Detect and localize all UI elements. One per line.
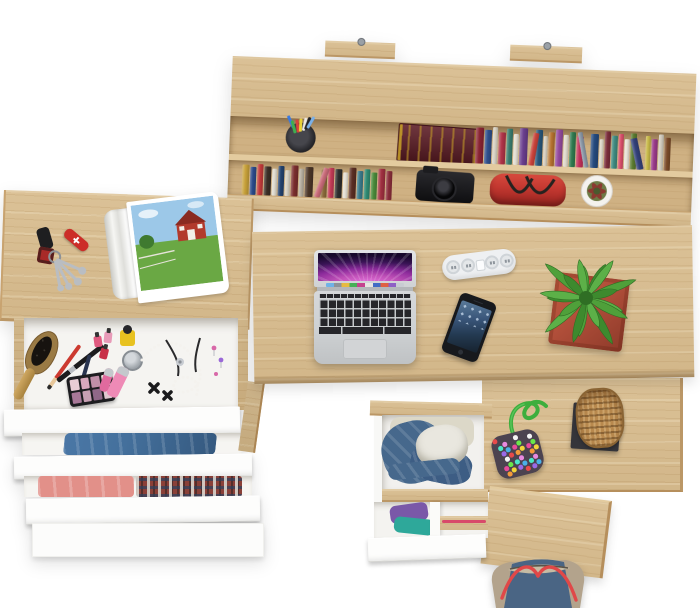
lower-drawer-interior <box>374 502 488 538</box>
nail-polish-mini <box>93 335 102 347</box>
earrings <box>212 346 224 376</box>
bead <box>518 464 523 469</box>
eyeshadow-pan <box>71 392 81 404</box>
book-spine <box>263 166 271 195</box>
bottle-cap <box>123 325 132 334</box>
bead <box>509 452 514 457</box>
bead <box>504 466 509 471</box>
bead <box>512 444 517 449</box>
book-spine <box>377 169 385 200</box>
bead <box>532 463 537 468</box>
makeup-drawer-interior <box>24 318 238 410</box>
book-spine <box>370 172 377 199</box>
wall-mount-tab <box>325 41 396 60</box>
book-spine <box>475 127 484 163</box>
drawer-wood-strip <box>440 516 488 530</box>
bead <box>505 447 510 452</box>
drawer-front-closed <box>32 523 264 557</box>
dresser-tabletop <box>0 190 254 330</box>
screw-icon <box>357 38 365 46</box>
jeans-drawer-interior <box>22 433 242 455</box>
phone-app-icons <box>456 301 491 330</box>
bead <box>529 448 534 453</box>
key-bunch <box>44 250 97 294</box>
book-spine <box>348 168 356 199</box>
eyeshadow-pan <box>69 379 79 391</box>
bead <box>501 451 506 456</box>
book-spine <box>385 171 392 200</box>
bead <box>530 439 535 444</box>
keyboard-keys <box>319 299 411 326</box>
function-key-row <box>319 294 411 298</box>
drawer-front <box>26 495 260 524</box>
bead <box>504 456 509 461</box>
open-drawer-interior <box>382 415 484 489</box>
bead <box>533 453 538 458</box>
jewelry-cluster <box>136 332 228 406</box>
book-spine <box>519 128 528 165</box>
bead <box>502 442 507 447</box>
laptop <box>314 250 416 364</box>
laptop-keyboard-deck <box>314 291 416 364</box>
bead <box>498 446 503 451</box>
succulent-plant <box>522 232 646 350</box>
book-spine <box>498 132 506 164</box>
book-spine <box>334 169 342 198</box>
book-spine <box>342 172 348 198</box>
bead <box>508 462 513 467</box>
folded-plaid-clothes <box>136 476 242 497</box>
laptop-wallpaper <box>318 253 412 281</box>
bottle-cap <box>106 328 111 333</box>
drawer-wood-rail <box>382 489 488 502</box>
book-spine <box>555 129 563 166</box>
teal-cloth <box>393 516 434 536</box>
screw-icon <box>543 42 551 50</box>
pink-trim <box>442 520 486 523</box>
bead <box>507 471 512 476</box>
pens <box>285 122 316 153</box>
bead <box>536 459 541 464</box>
handbag-straps <box>489 171 566 205</box>
power-socket <box>484 255 500 271</box>
bead <box>512 435 517 440</box>
pearl-necklace <box>142 343 192 360</box>
barn-photo <box>131 196 224 291</box>
bead <box>526 443 531 448</box>
bead <box>528 458 533 463</box>
makeup-drawer-open <box>14 318 248 410</box>
bead <box>522 460 527 465</box>
bead <box>514 459 519 464</box>
bead <box>511 467 516 472</box>
bead <box>515 450 520 455</box>
book-spine <box>590 134 599 168</box>
power-socket <box>460 258 476 274</box>
spacebar-row <box>319 327 411 334</box>
folded-jeans <box>63 433 217 455</box>
hairbrush-handle <box>12 366 37 401</box>
bottle-cap <box>95 332 100 338</box>
under-desk-drawers <box>368 386 496 562</box>
book-spine <box>284 170 290 196</box>
wall-mount-tab <box>510 45 583 64</box>
hair-clips <box>150 384 171 399</box>
book-spine <box>363 169 370 199</box>
drawer-divider <box>430 502 440 536</box>
workspace-render <box>0 0 700 608</box>
canvas-tote-bag <box>486 548 590 608</box>
camera <box>415 169 475 204</box>
nail-polish-mini <box>99 347 109 360</box>
eyeshadow-pan <box>82 390 92 402</box>
book-spine <box>277 166 284 196</box>
book-spine <box>256 164 263 195</box>
book-spine <box>484 130 492 164</box>
magazine-page <box>126 191 230 303</box>
power-socket <box>499 253 515 269</box>
power-socket <box>445 259 461 275</box>
nail-polish-mini <box>103 332 112 344</box>
drawer-front <box>368 534 487 562</box>
bead <box>525 466 530 471</box>
red-handbag <box>489 173 566 207</box>
book-spine <box>664 138 671 171</box>
open-magazine <box>102 191 230 306</box>
succulent-leaves <box>522 232 646 350</box>
bead <box>518 455 523 460</box>
bead <box>527 433 532 438</box>
bead <box>516 440 521 445</box>
wall-shelf-unit <box>227 50 697 228</box>
bead <box>519 445 524 450</box>
book-spine <box>356 171 363 199</box>
clothes-drawer-interior <box>24 476 252 497</box>
nail-polish-yellow <box>120 330 135 346</box>
bead <box>533 444 538 449</box>
book-spine <box>290 165 298 196</box>
trackpad <box>343 339 387 359</box>
folded-pink-clothes <box>38 476 134 497</box>
woven-basket <box>574 386 626 449</box>
succulent-center <box>579 291 593 305</box>
vanity-dresser <box>4 186 256 558</box>
eyeshadow-pan <box>80 377 90 389</box>
pen-cup <box>285 122 316 153</box>
white-pot-plant <box>579 174 614 208</box>
book-spine <box>304 167 313 197</box>
book-spine <box>651 139 658 170</box>
laptop-screen <box>314 250 416 287</box>
bottle-cap <box>103 344 108 350</box>
